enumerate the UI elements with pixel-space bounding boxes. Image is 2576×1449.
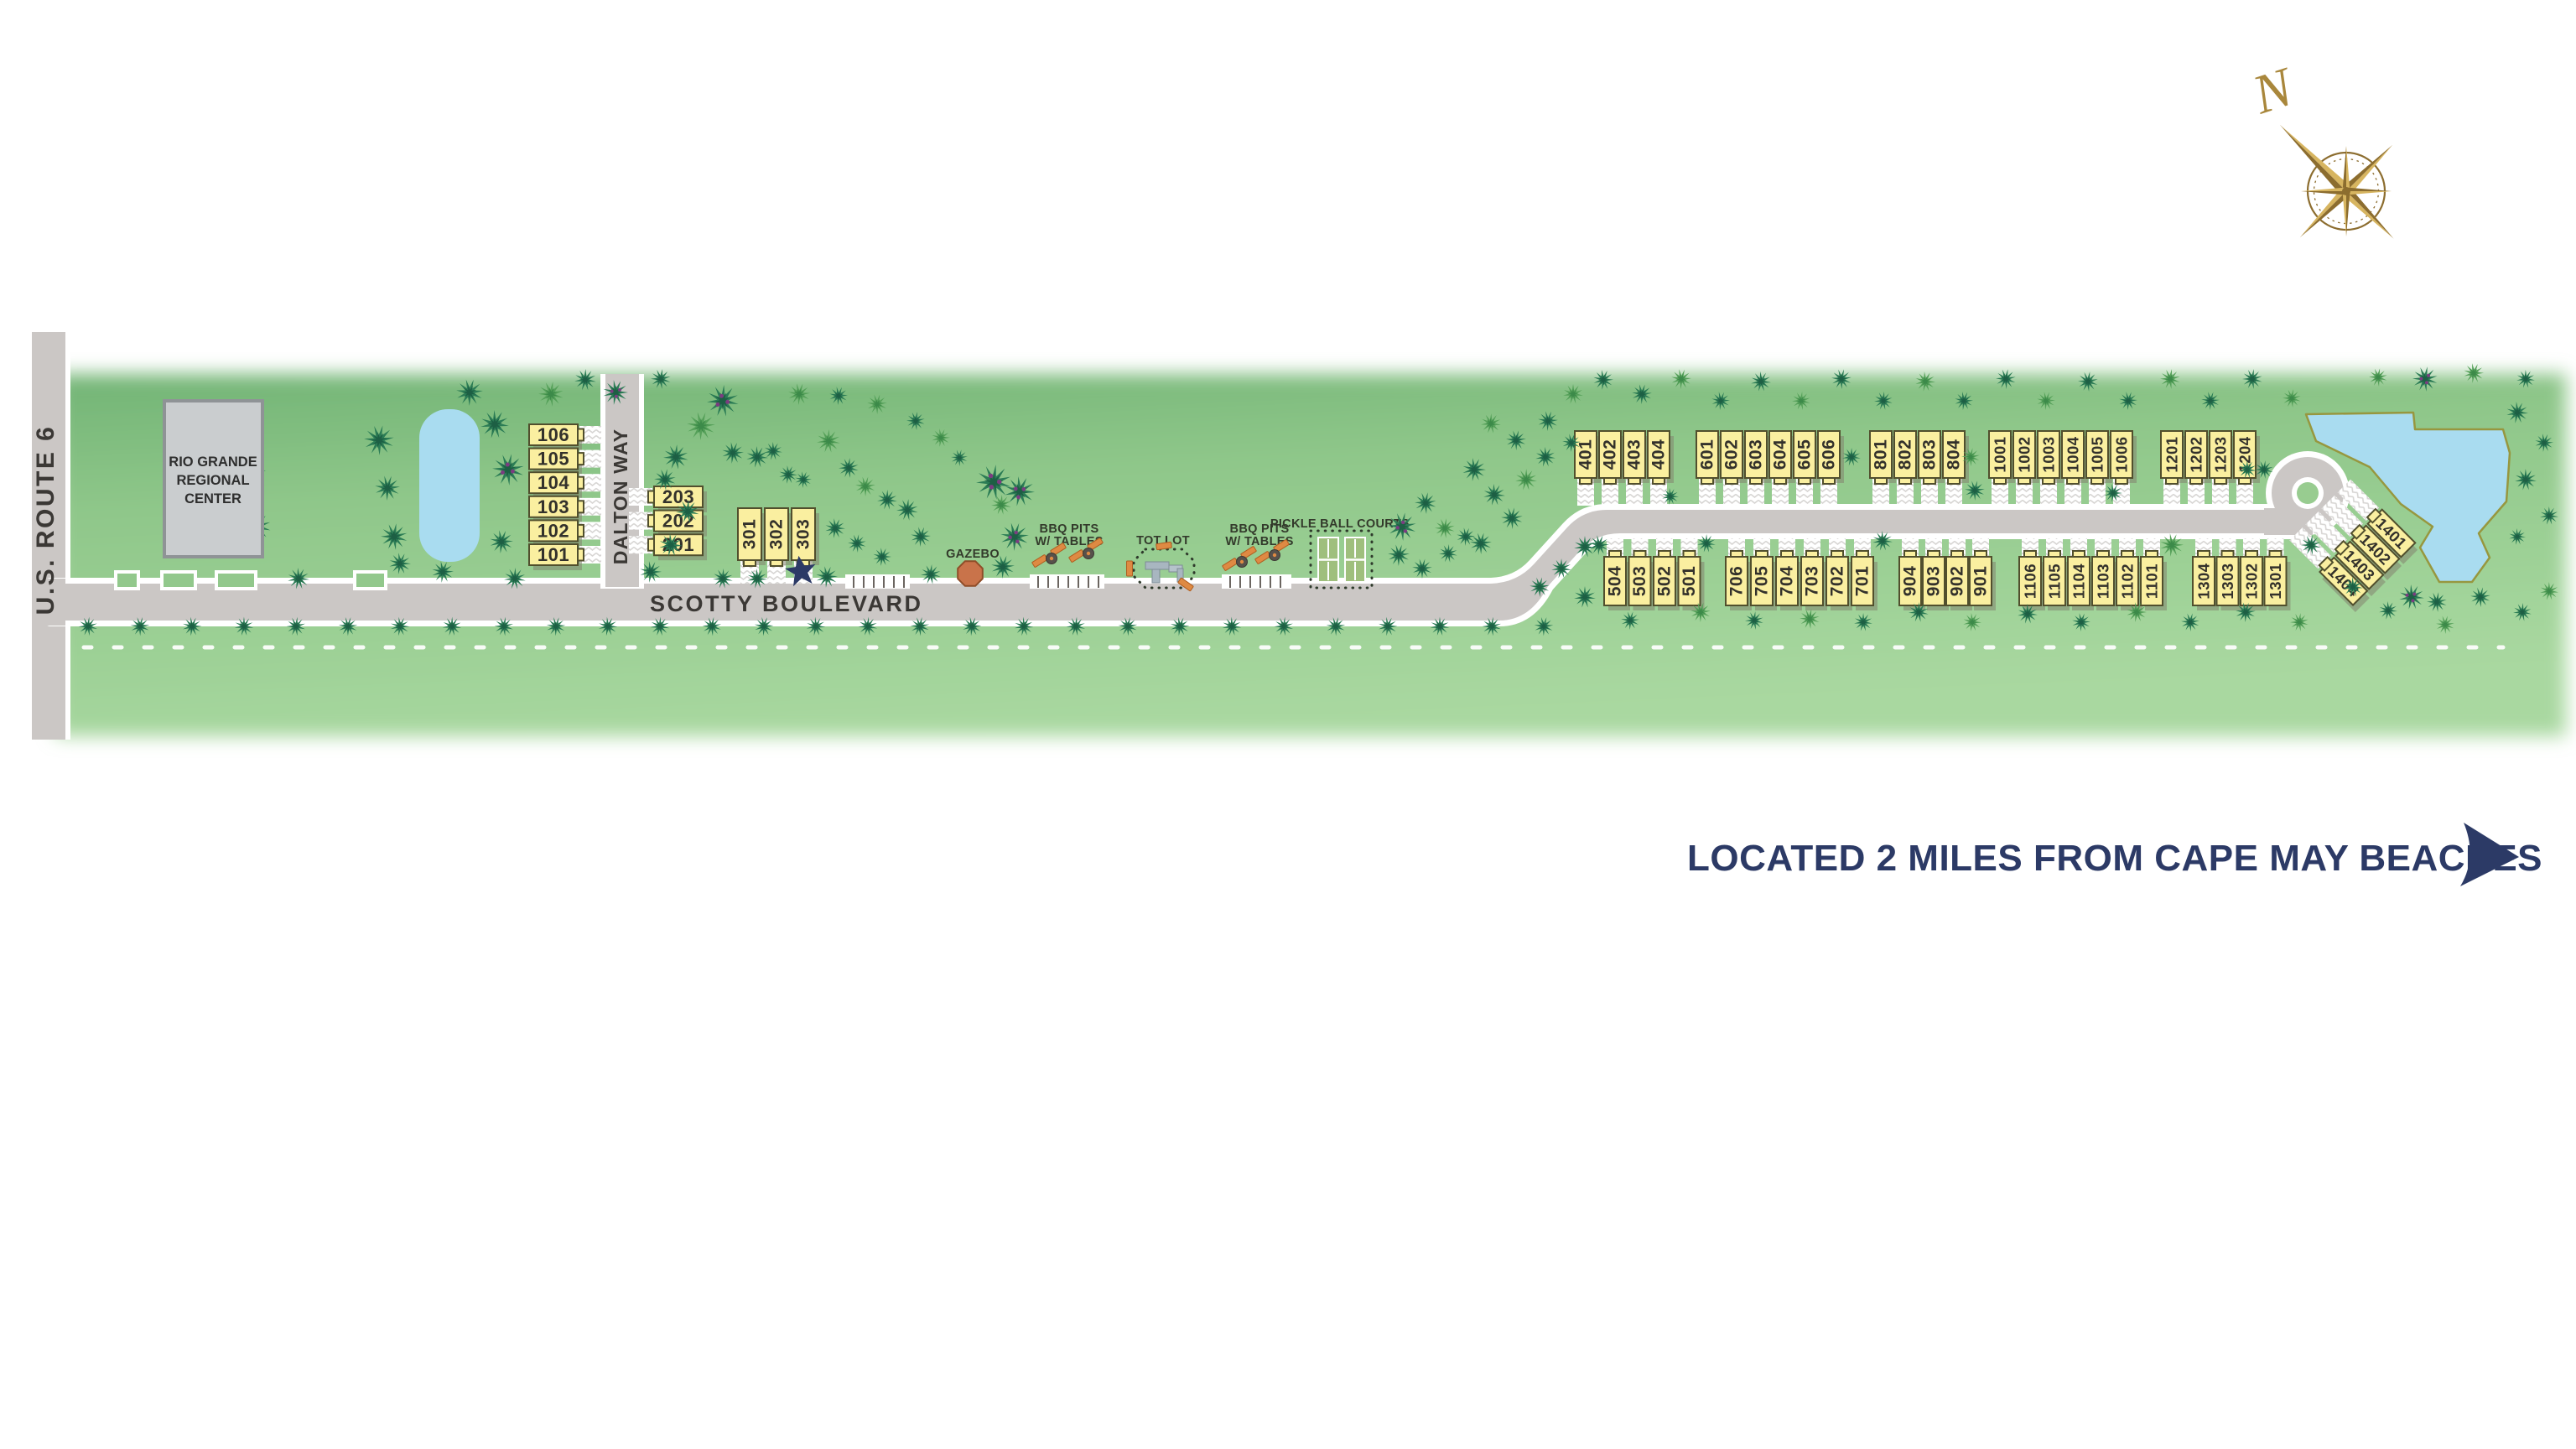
pickleball-court	[1318, 538, 1338, 582]
lot-label: 605	[1795, 439, 1815, 470]
lot-804: 804	[1943, 431, 1969, 484]
lot-303: 303	[792, 508, 819, 566]
lot-label: 601	[1698, 439, 1717, 470]
pickleball-label: PICKLE BALL COURTS	[1270, 517, 1410, 531]
lot-1204: 1204	[2234, 431, 2260, 484]
lot-602: 602	[1721, 431, 1747, 484]
lot-label: 706	[1727, 566, 1747, 597]
lot-1001: 1001	[1989, 431, 2015, 484]
parking-strip	[1222, 574, 1291, 589]
bbq1-label-line1: BBQ PITS	[1040, 522, 1099, 536]
lot-904: 904	[1899, 551, 1925, 610]
lot-label: 1001	[1992, 436, 2009, 472]
lot-404: 404	[1648, 431, 1674, 484]
lot-1104: 1104	[2068, 551, 2094, 610]
lot-703: 703	[1801, 551, 1827, 610]
lot-1201: 1201	[2161, 431, 2187, 484]
lot-label: 602	[1722, 439, 1742, 470]
lot-706: 706	[1726, 551, 1752, 610]
lot-label: 1106	[2022, 563, 2039, 599]
lot-label: 901	[1971, 566, 1991, 597]
lot-label: 1005	[2089, 436, 2106, 472]
lot-604: 604	[1769, 431, 1795, 484]
lot-1101: 1101	[2141, 551, 2167, 610]
lot-label: 802	[1896, 439, 1915, 470]
lot-105: 105	[529, 449, 584, 475]
lot-label: 702	[1828, 566, 1847, 597]
lot-label: 1004	[2064, 436, 2082, 472]
lot-1003: 1003	[2038, 431, 2064, 484]
lot-801: 801	[1870, 431, 1896, 484]
lot-label: 902	[1948, 566, 1967, 597]
lot-label: 705	[1753, 566, 1772, 597]
lot-label: 1002	[2016, 436, 2033, 472]
lot-label: 501	[1680, 566, 1699, 597]
lot-label: 1202	[2188, 436, 2205, 472]
pond-west	[419, 409, 480, 562]
lot-903: 903	[1923, 551, 1949, 610]
lot-701: 701	[1851, 551, 1877, 610]
lot-302: 302	[765, 508, 792, 566]
scotty-blvd-label: SCOTTY BOULEVARD	[650, 591, 923, 616]
lot-label: 401	[1576, 439, 1596, 470]
lot-label: 1104	[2070, 563, 2088, 599]
lot-504: 504	[1604, 551, 1630, 610]
lot-401: 401	[1575, 431, 1601, 484]
lot-301: 301	[738, 508, 766, 566]
lot-label: 303	[794, 519, 813, 550]
lot-label: 302	[767, 519, 787, 550]
lot-label: 1103	[2095, 563, 2112, 599]
lot-103: 103	[529, 496, 584, 522]
lot-label: 604	[1771, 439, 1790, 470]
lot-502: 502	[1654, 551, 1680, 610]
lot-803: 803	[1919, 431, 1945, 484]
lot-1103: 1103	[2092, 551, 2118, 610]
lot-1304: 1304	[2193, 551, 2219, 610]
lot-901: 901	[1970, 551, 1996, 610]
lot-label: 1302	[2243, 563, 2261, 599]
lot-601: 601	[1696, 431, 1722, 484]
lot-label: 1105	[2046, 563, 2064, 599]
lot-label: 606	[1820, 439, 1839, 470]
lot-label: 105	[538, 449, 569, 470]
lot-label: 1102	[2119, 563, 2137, 599]
lot-1203: 1203	[2210, 431, 2236, 484]
lot-1301: 1301	[2265, 551, 2291, 610]
lot-1102: 1102	[2116, 551, 2142, 610]
lot-1004: 1004	[2062, 431, 2088, 484]
lot-label: 703	[1803, 566, 1822, 597]
lot-1302: 1302	[2241, 551, 2267, 610]
lot-label: 801	[1872, 439, 1891, 470]
lot-label: 404	[1649, 439, 1669, 470]
lot-label: 403	[1625, 439, 1644, 470]
lot-1002: 1002	[2013, 431, 2039, 484]
lot-label: 301	[740, 519, 760, 550]
lot-label: 704	[1778, 566, 1797, 597]
lot-106: 106	[529, 424, 584, 450]
lot-label: 603	[1747, 439, 1766, 470]
lot-1006: 1006	[2111, 431, 2137, 484]
lot-503: 503	[1629, 551, 1655, 610]
lot-label: 106	[538, 424, 569, 445]
lot-1005: 1005	[2086, 431, 2112, 484]
lot-label: 1101	[2143, 563, 2161, 599]
lot-704: 704	[1776, 551, 1802, 610]
lot-402: 402	[1599, 431, 1625, 484]
building-name-line3: CENTER	[184, 491, 241, 506]
lot-label: 804	[1945, 439, 1964, 470]
lot-label: 1301	[2267, 563, 2284, 599]
lot-label: 1003	[2040, 436, 2058, 472]
lot-1106: 1106	[2019, 551, 2045, 610]
building-name-line1: RIO GRANDE	[169, 454, 257, 470]
lot-label: 903	[1924, 566, 1944, 597]
lot-label: 1303	[2219, 563, 2236, 599]
parking-strip	[845, 574, 910, 589]
lot-101: 101	[529, 544, 584, 570]
lot-label: 701	[1853, 566, 1872, 597]
lot-102: 102	[529, 520, 584, 546]
lot-label: 504	[1606, 566, 1625, 597]
location-tagline: LOCATED 2 MILES FROM CAPE MAY BEACHES	[1687, 838, 2542, 879]
lot-603: 603	[1745, 431, 1771, 484]
compass-rose-icon: N	[2234, 55, 2440, 285]
lot-label: 1006	[2113, 436, 2131, 472]
lot-605: 605	[1794, 431, 1820, 484]
lot-1202: 1202	[2185, 431, 2211, 484]
lot-1303: 1303	[2217, 551, 2243, 610]
lot-label: 102	[538, 520, 569, 541]
lot-label: 502	[1655, 566, 1675, 597]
lot-705: 705	[1751, 551, 1777, 610]
lot-501: 501	[1679, 551, 1705, 610]
pickleball-court	[1345, 538, 1365, 582]
lot-label: 1304	[2195, 563, 2213, 599]
lot-902: 902	[1946, 551, 1972, 610]
lot-606: 606	[1818, 431, 1844, 484]
lot-label: 402	[1601, 439, 1620, 470]
lot-403: 403	[1623, 431, 1649, 484]
lot-label: 1201	[2163, 436, 2181, 472]
lot-label: 503	[1630, 566, 1649, 597]
lot-1105: 1105	[2044, 551, 2070, 610]
gazebo-label: GAZEBO	[946, 548, 1000, 561]
lot-label: 803	[1920, 439, 1940, 470]
lot-702: 702	[1826, 551, 1852, 610]
site-plan-map: GAZEBO BBQ PITS W/ TABLES TOT LOT BBQ PI…	[0, 0, 2576, 1449]
lot-label: 101	[538, 544, 569, 565]
building-name-line2: REGIONAL	[176, 473, 249, 488]
parking-strip	[1030, 574, 1104, 589]
lot-104: 104	[529, 472, 584, 498]
lot-label: 103	[538, 496, 569, 517]
lot-label: 904	[1901, 566, 1920, 597]
regional-center-building: RIO GRANDE REGIONAL CENTER	[164, 401, 262, 557]
lot-label: 104	[538, 472, 569, 493]
lot-label: 1203	[2212, 436, 2230, 472]
dalton-way-label: DALTON WAY	[610, 428, 631, 564]
lot-label: 203	[662, 486, 694, 507]
lot-802: 802	[1894, 431, 1920, 484]
compass-north-label: N	[2245, 55, 2303, 127]
gazebo-icon	[958, 561, 983, 586]
route6-label: U.S. ROUTE 6	[32, 425, 60, 615]
